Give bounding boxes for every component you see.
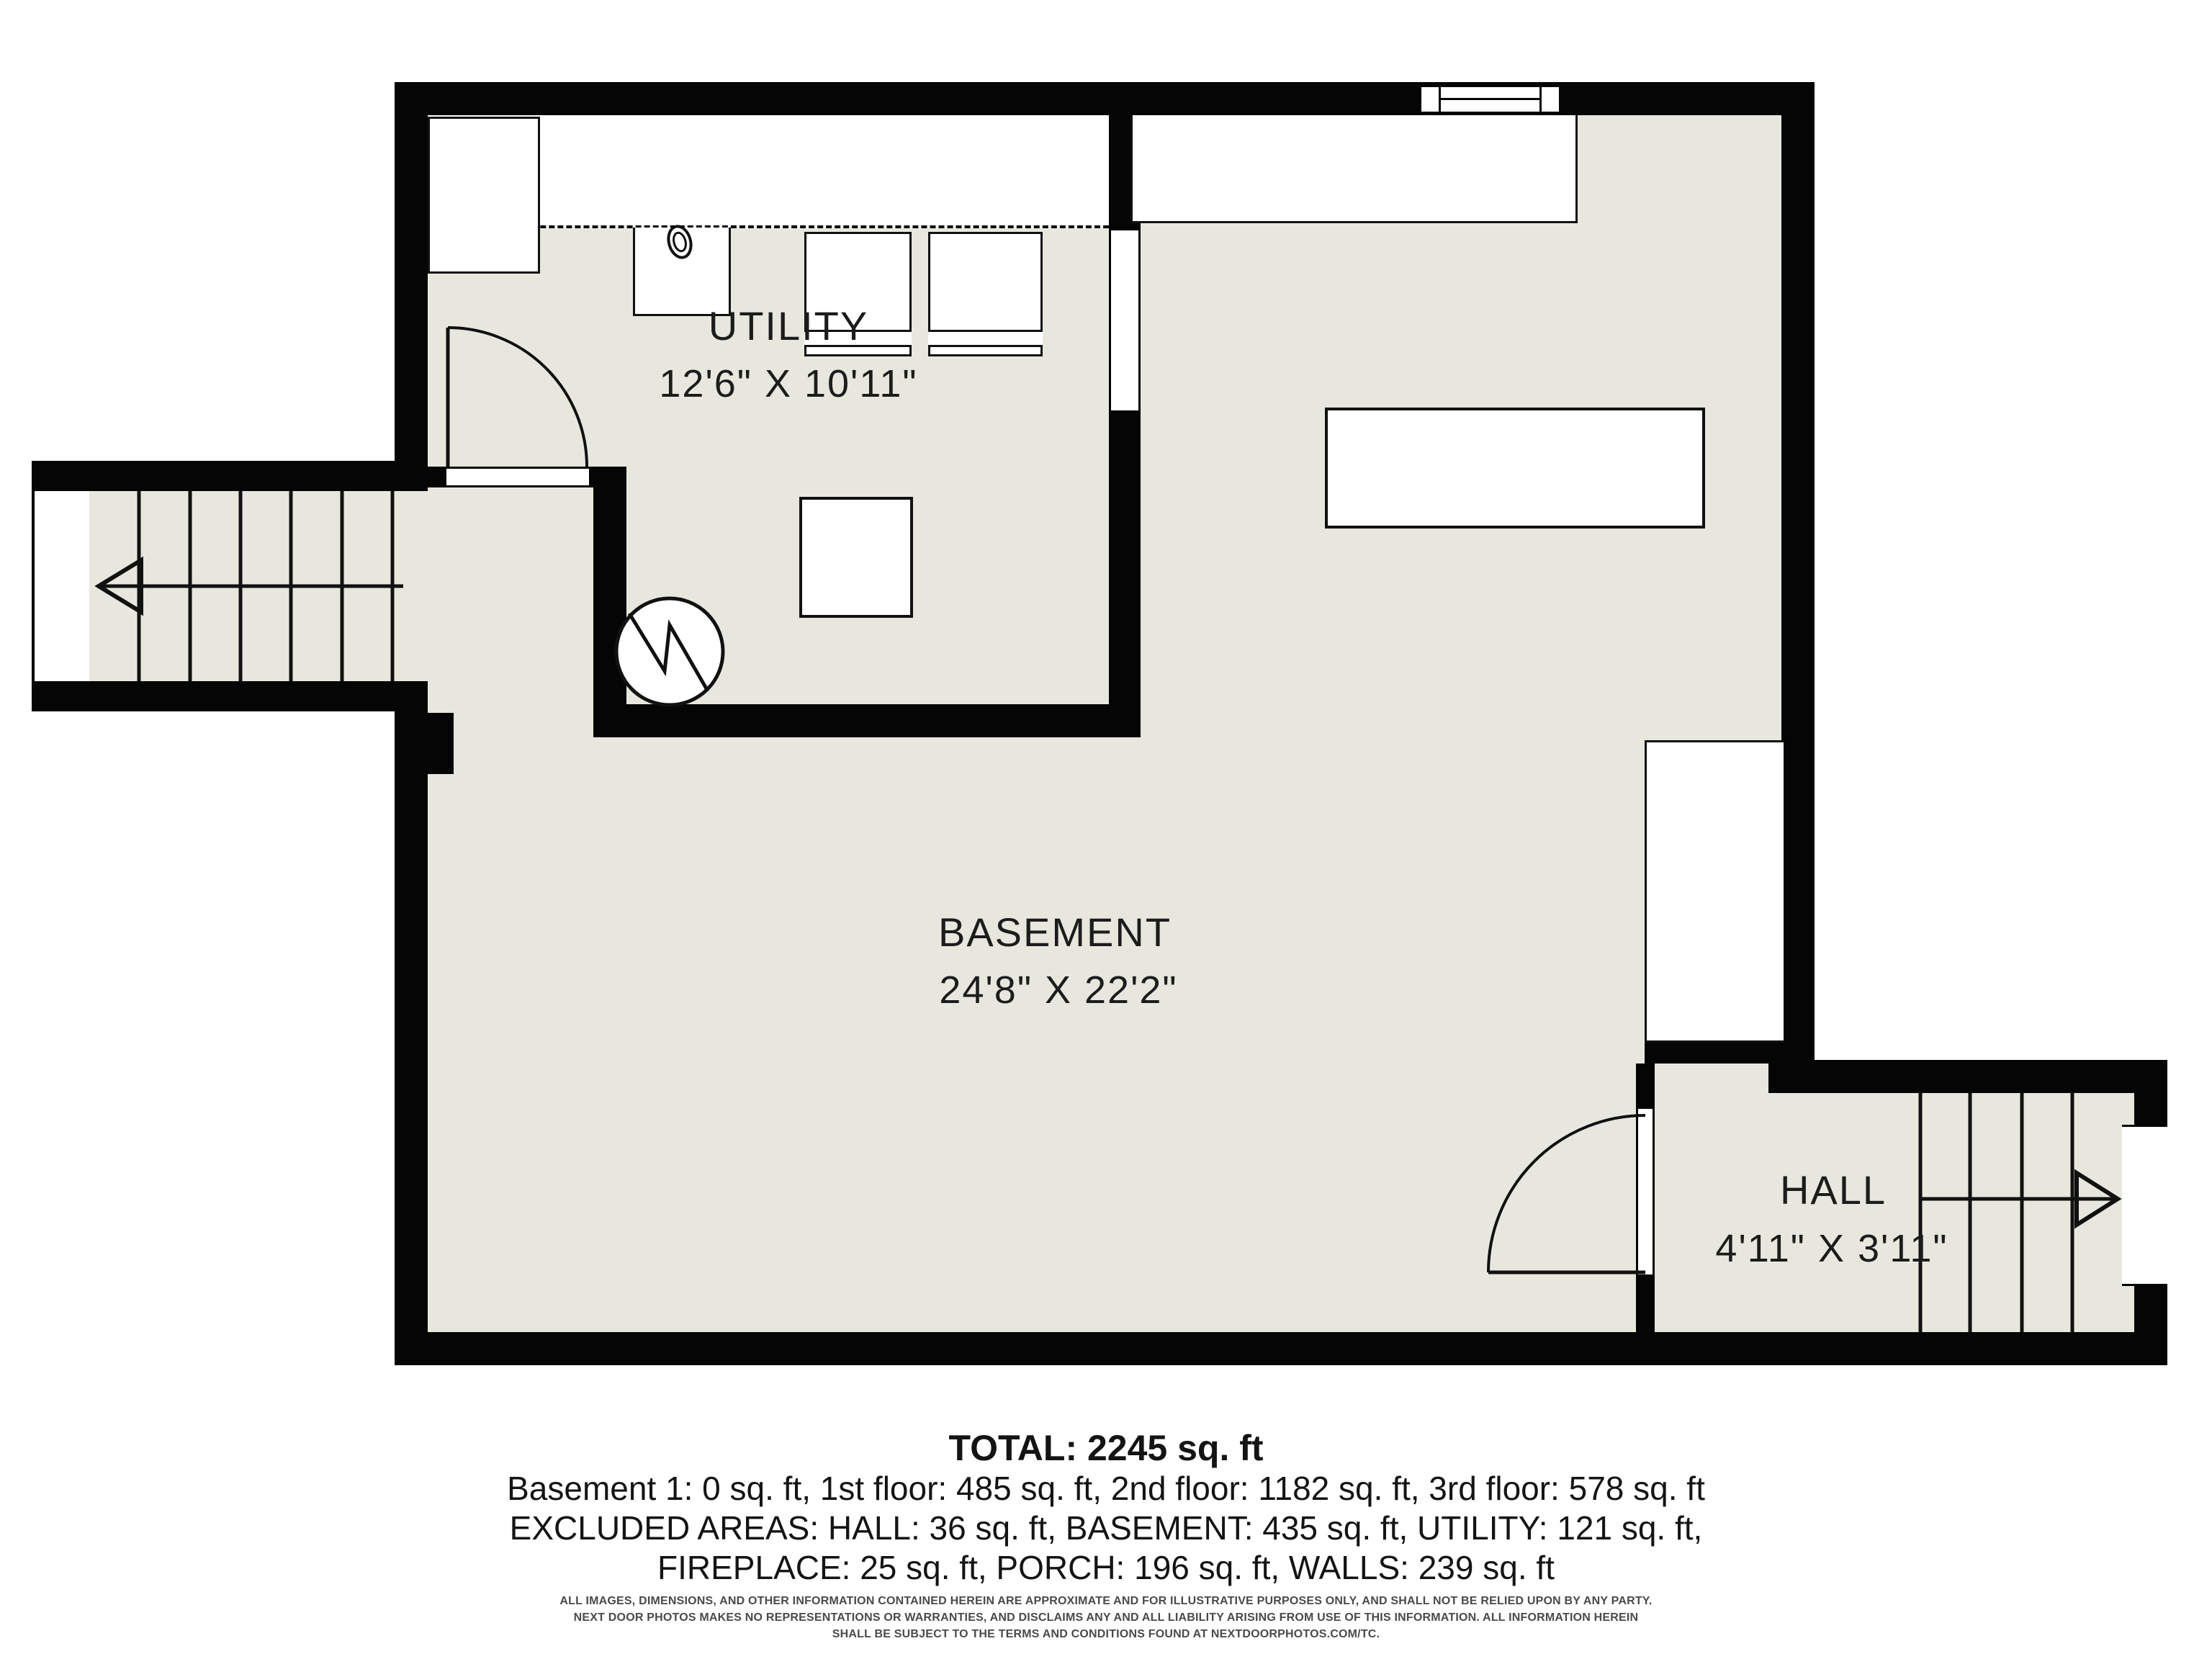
stair-wing-top-wall <box>32 461 428 491</box>
stair-wing-bottom-wall <box>32 681 428 711</box>
floorplan-page: UTILITY 12'6" X 10'11" BASEMENT 24'8" X … <box>0 0 2212 1659</box>
top-wall <box>395 82 1815 115</box>
disclaimer-line-3: SHALL BE SUBJECT TO THE TERMS AND CONDIT… <box>0 1626 2212 1642</box>
floor-areas-text: Basement 1: 0 sq. ft, 1st floor: 485 sq.… <box>0 1469 2212 1509</box>
hall-right-wall-bottom-stub <box>2134 1286 2167 1365</box>
hall-room-label: HALL <box>1689 1166 1977 1213</box>
utility-door-opening <box>446 467 589 487</box>
area-summary: TOTAL: 2245 sq. ft Basement 1: 0 sq. ft,… <box>0 1427 2212 1588</box>
total-area-text: TOTAL: 2245 sq. ft <box>0 1427 2212 1469</box>
hall-west-wall-bottom <box>1636 1274 1655 1332</box>
window-post-right <box>1539 87 1542 112</box>
basement-room-dimensions: 24'8" X 22'2" <box>878 968 1238 1012</box>
left-wall-lower <box>395 681 428 1365</box>
utility-door-wall-left <box>428 467 446 487</box>
stair-wing-opening <box>32 491 89 681</box>
left-wall-upper <box>395 82 428 491</box>
utility-east-wall-bottom <box>1109 410 1141 737</box>
bottom-wall <box>395 1332 2167 1365</box>
utility-room-label: UTILITY <box>644 302 932 349</box>
utility-room-dimensions: 12'6" X 10'11" <box>608 361 968 406</box>
excluded-areas-text-2: FIREPLACE: 25 sq. ft, PORCH: 196 sq. ft,… <box>0 1548 2212 1588</box>
hall-right-wall-top-stub <box>2134 1060 2167 1125</box>
dryer-detail <box>928 330 1043 347</box>
water-heater-box <box>799 497 913 618</box>
hall-west-wall-top <box>1636 1064 1655 1109</box>
window-pane-divider <box>1439 98 1542 100</box>
egress-area <box>1130 115 1578 223</box>
hall-stair-opening <box>2122 1125 2167 1286</box>
utility-cabinet <box>428 117 540 274</box>
island-counter <box>1325 408 1705 529</box>
utility-west-wall <box>593 467 626 737</box>
window <box>1419 85 1561 114</box>
disclaimer-line-1: ALL IMAGES, DIMENSIONS, AND OTHER INFORM… <box>0 1593 2212 1609</box>
utility-east-wall-opening <box>1109 230 1141 410</box>
dryer-unit <box>928 232 1043 356</box>
wall-step-block <box>395 713 454 774</box>
hall-room-dimensions: 4'11" X 3'11" <box>1652 1226 2012 1271</box>
disclaimer-line-2: NEXT DOOR PHOTOS MAKES NO REPRESENTATION… <box>0 1609 2212 1626</box>
hall-top-wall <box>1768 1060 2167 1093</box>
basement-room-label: BASEMENT <box>911 909 1199 956</box>
disclaimer: ALL IMAGES, DIMENSIONS, AND OTHER INFORM… <box>0 1593 2212 1642</box>
right-wall <box>1781 82 1815 1093</box>
window-post-left <box>1439 87 1441 112</box>
stair-wing-floor <box>86 491 428 681</box>
excluded-areas-text-1: EXCLUDED AREAS: HALL: 36 sq. ft, BASEMEN… <box>0 1509 2212 1548</box>
wall-niche <box>1645 740 1784 1043</box>
utility-south-wall <box>593 704 1141 737</box>
